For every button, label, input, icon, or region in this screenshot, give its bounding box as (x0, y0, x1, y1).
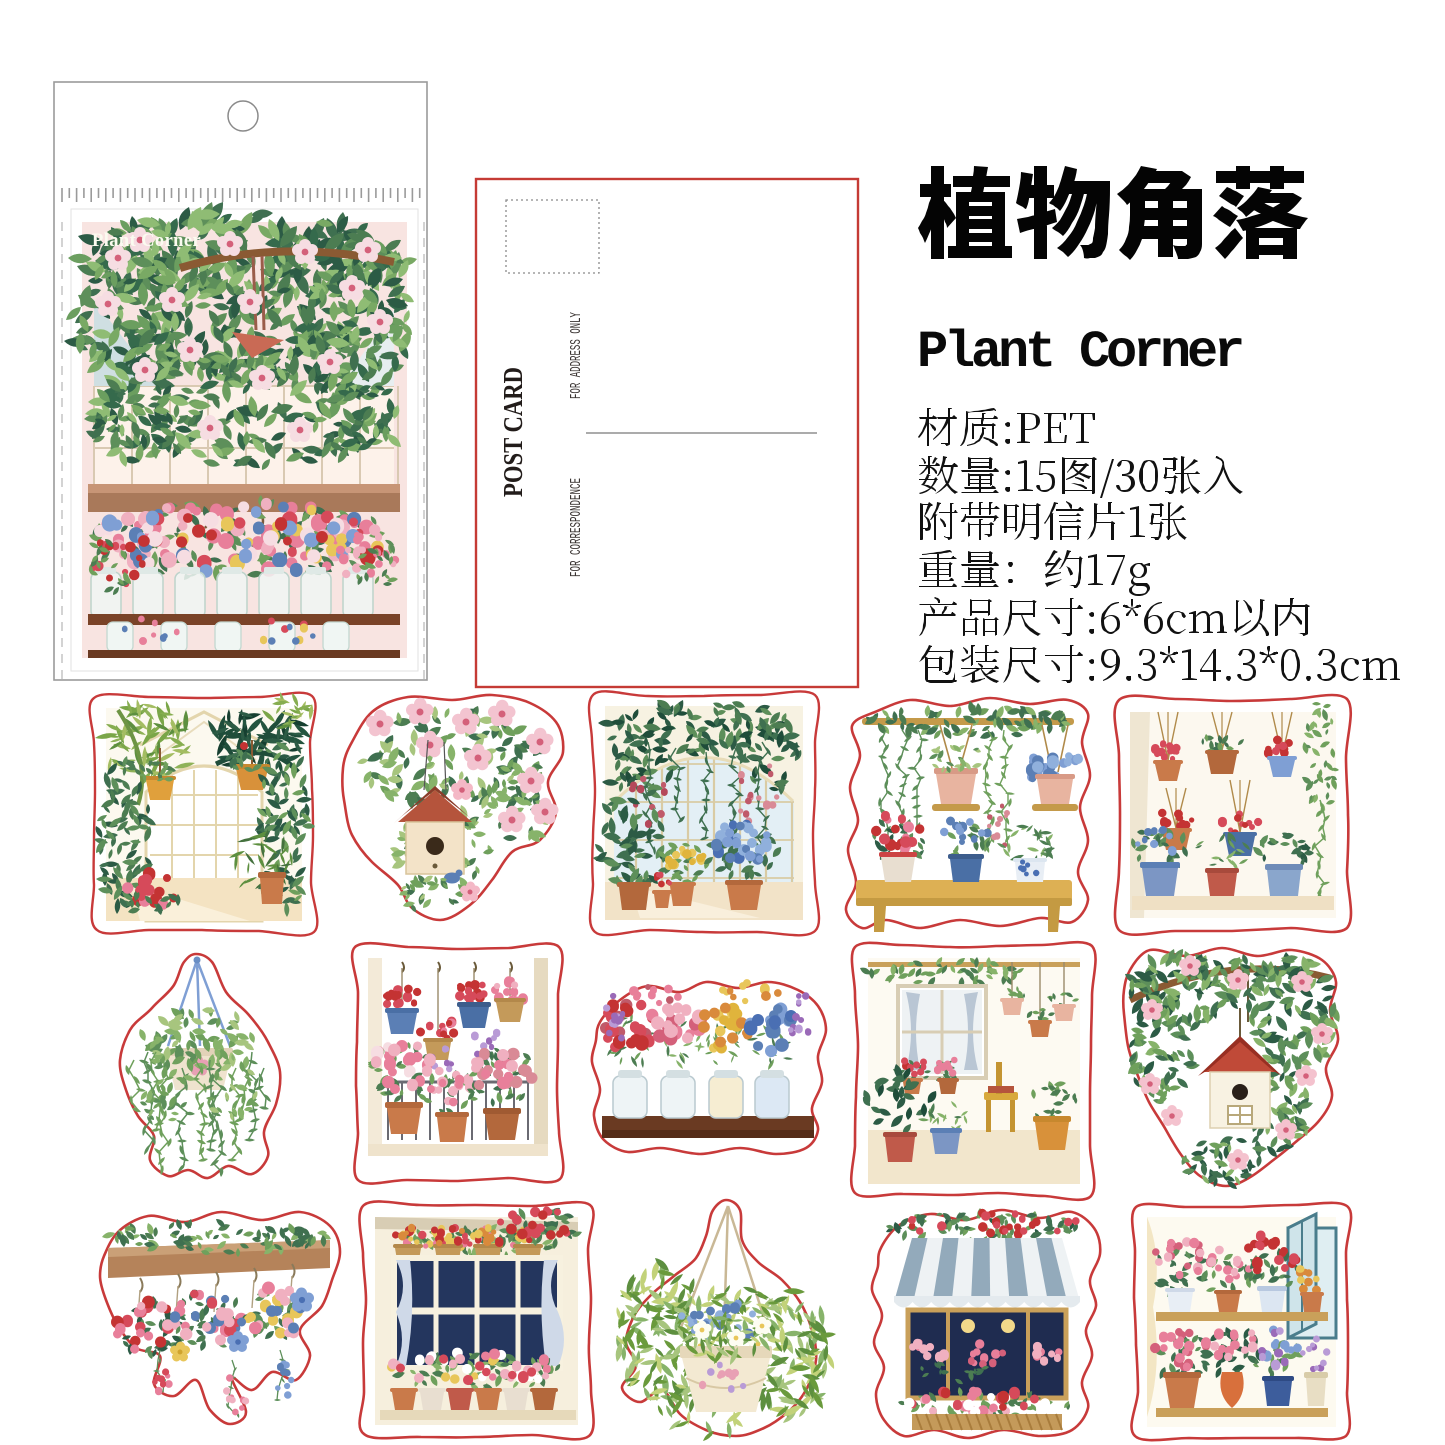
svg-text:FOR CORRESPONDENCE: FOR CORRESPONDENCE (568, 478, 585, 577)
svg-text:FOR ADDRESS ONLY: FOR ADDRESS ONLY (568, 312, 585, 399)
svg-text:Plant Corner: Plant Corner (917, 323, 1242, 382)
svg-text:POST CARD: POST CARD (497, 367, 528, 497)
svg-text:Plant Corner: Plant Corner (92, 231, 201, 251)
